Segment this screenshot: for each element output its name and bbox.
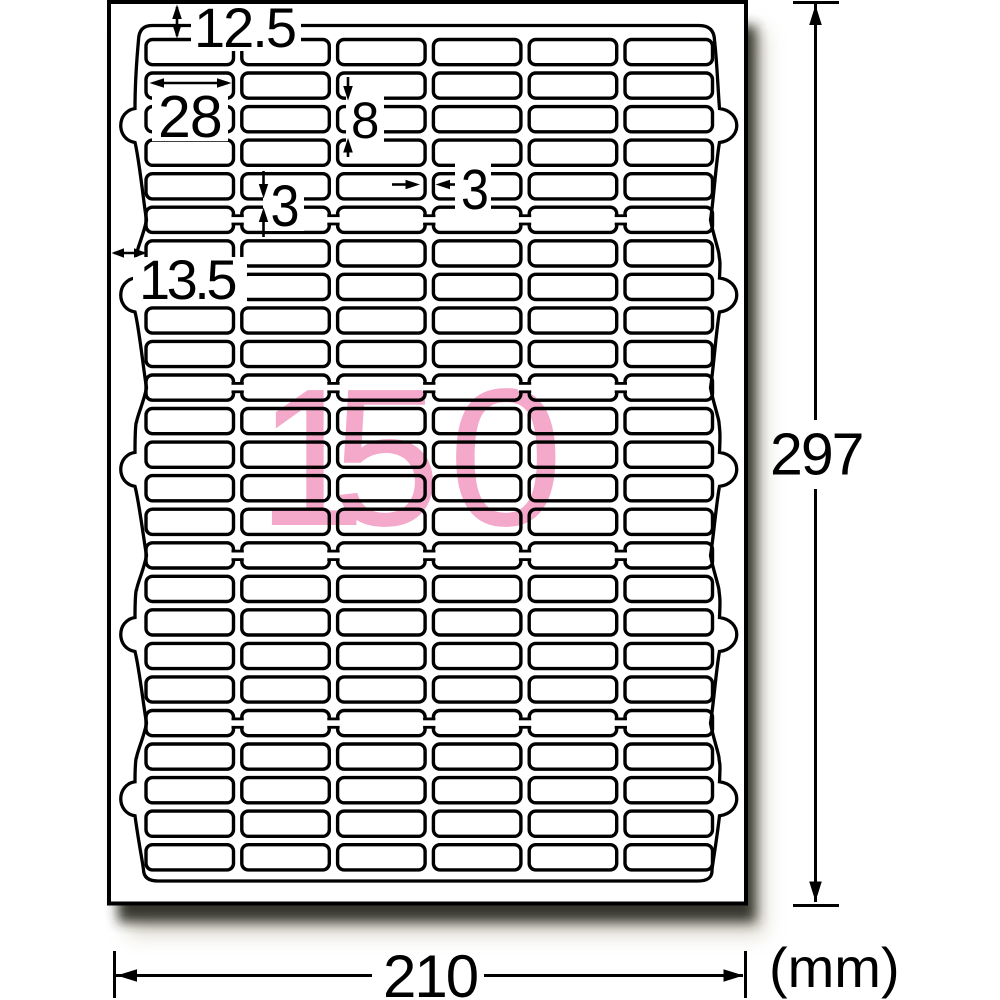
- svg-text:13.5: 13.5: [139, 248, 235, 311]
- svg-text:8: 8: [351, 92, 379, 149]
- svg-text:3: 3: [271, 173, 300, 238]
- svg-text:28: 28: [158, 84, 222, 150]
- svg-text:3: 3: [461, 158, 489, 222]
- svg-text:210: 210: [383, 943, 478, 1000]
- svg-text:297: 297: [770, 422, 862, 488]
- svg-text:12.5: 12.5: [194, 0, 295, 59]
- svg-text:(mm): (mm): [769, 936, 900, 999]
